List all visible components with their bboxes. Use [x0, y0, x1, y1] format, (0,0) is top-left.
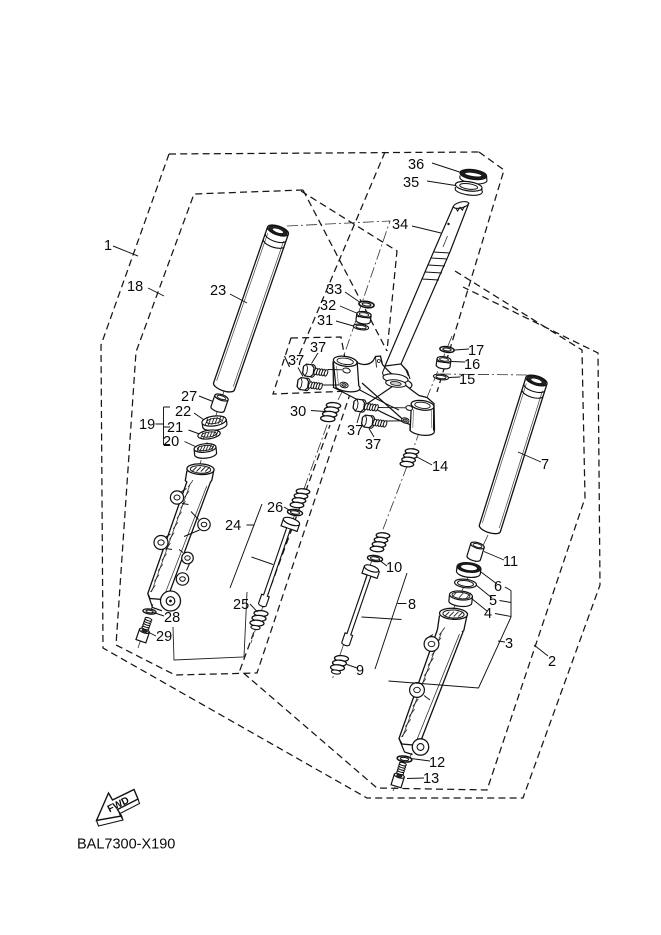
svg-text:37: 37	[365, 437, 381, 453]
svg-text:BAL7300-X190: BAL7300-X190	[77, 837, 175, 853]
svg-text:23: 23	[210, 283, 226, 299]
svg-text:1: 1	[104, 238, 112, 254]
svg-text:8: 8	[408, 597, 416, 613]
svg-text:26: 26	[267, 500, 283, 516]
svg-text:25: 25	[233, 597, 249, 613]
svg-text:37: 37	[288, 353, 304, 369]
svg-text:3: 3	[505, 636, 513, 652]
svg-text:16: 16	[464, 357, 480, 373]
svg-text:34: 34	[392, 217, 408, 233]
svg-text:31: 31	[317, 313, 333, 329]
svg-text:29: 29	[156, 629, 172, 645]
svg-text:9: 9	[356, 663, 364, 679]
svg-text:10: 10	[386, 560, 402, 576]
svg-text:14: 14	[432, 459, 448, 475]
svg-text:35: 35	[403, 175, 419, 191]
svg-text:2: 2	[548, 654, 556, 670]
svg-text:12: 12	[429, 755, 445, 771]
svg-text:19: 19	[139, 417, 155, 433]
svg-text:37: 37	[310, 340, 326, 356]
svg-text:27: 27	[181, 389, 197, 405]
svg-text:7: 7	[541, 457, 549, 473]
svg-text:15: 15	[459, 372, 475, 388]
svg-text:20: 20	[163, 434, 179, 450]
svg-text:33: 33	[326, 282, 342, 298]
svg-text:18: 18	[127, 279, 143, 295]
svg-text:37: 37	[347, 423, 363, 439]
svg-text:11: 11	[503, 554, 518, 570]
svg-text:30: 30	[290, 404, 306, 420]
svg-text:36: 36	[408, 157, 424, 173]
svg-text:4: 4	[484, 606, 492, 622]
svg-text:24: 24	[225, 518, 241, 534]
svg-text:22: 22	[175, 404, 191, 420]
svg-text:13: 13	[423, 771, 439, 787]
svg-text:32: 32	[320, 298, 336, 314]
svg-text:28: 28	[164, 610, 180, 626]
